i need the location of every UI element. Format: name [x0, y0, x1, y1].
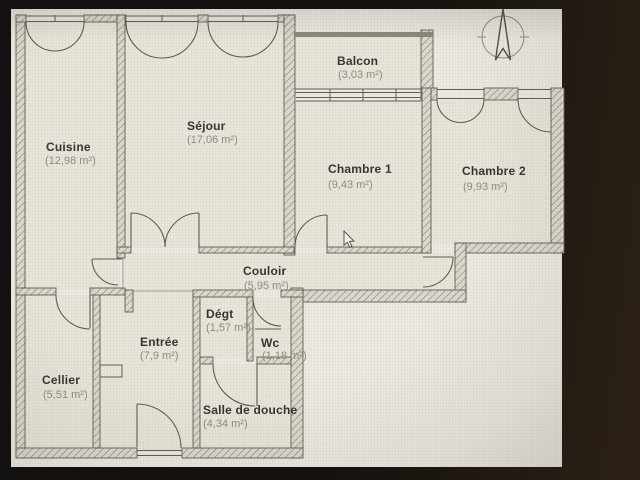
room-label-couloir: Couloir	[243, 264, 287, 278]
room-label-wc: Wc	[261, 336, 280, 350]
room-label-cellier: Cellier	[42, 373, 80, 387]
room-area-chambre1: (9,43 m²)	[328, 179, 373, 191]
room-area-cellier: (5,51 m²)	[43, 389, 88, 401]
screen-photo: Cuisine (12,98 m²) Séjour (17,06 m²) Bal…	[0, 0, 640, 480]
room-area-entree: (7,9 m²)	[140, 350, 179, 362]
room-label-sejour: Séjour	[187, 119, 226, 133]
room-label-cuisine: Cuisine	[46, 140, 91, 154]
room-area-degt: (1,57 m²)	[206, 322, 251, 334]
room-area-chambre2: (9,93 m²)	[463, 181, 508, 193]
room-label-salle-de-douche: Salle de douche	[203, 403, 297, 417]
room-label-entree: Entrée	[140, 335, 179, 349]
room-label-chambre2: Chambre 2	[462, 164, 526, 178]
room-label-chambre1: Chambre 1	[328, 162, 392, 176]
room-area-balcon: (3,03 m²)	[338, 69, 383, 81]
floor-plan: Cuisine (12,98 m²) Séjour (17,06 m²) Bal…	[0, 0, 640, 480]
room-area-couloir: (5,95 m²)	[244, 280, 289, 292]
room-area-sejour: (17,06 m²)	[187, 134, 238, 146]
balcony-railing	[294, 32, 433, 37]
room-area-cuisine: (12,98 m²)	[45, 155, 96, 167]
room-area-wc: (1,18 m²)	[262, 350, 307, 362]
room-area-salle-de-douche: (4,34 m²)	[203, 418, 248, 430]
room-label-balcon: Balcon	[337, 54, 378, 68]
room-label-degt: Dégt	[206, 307, 233, 321]
